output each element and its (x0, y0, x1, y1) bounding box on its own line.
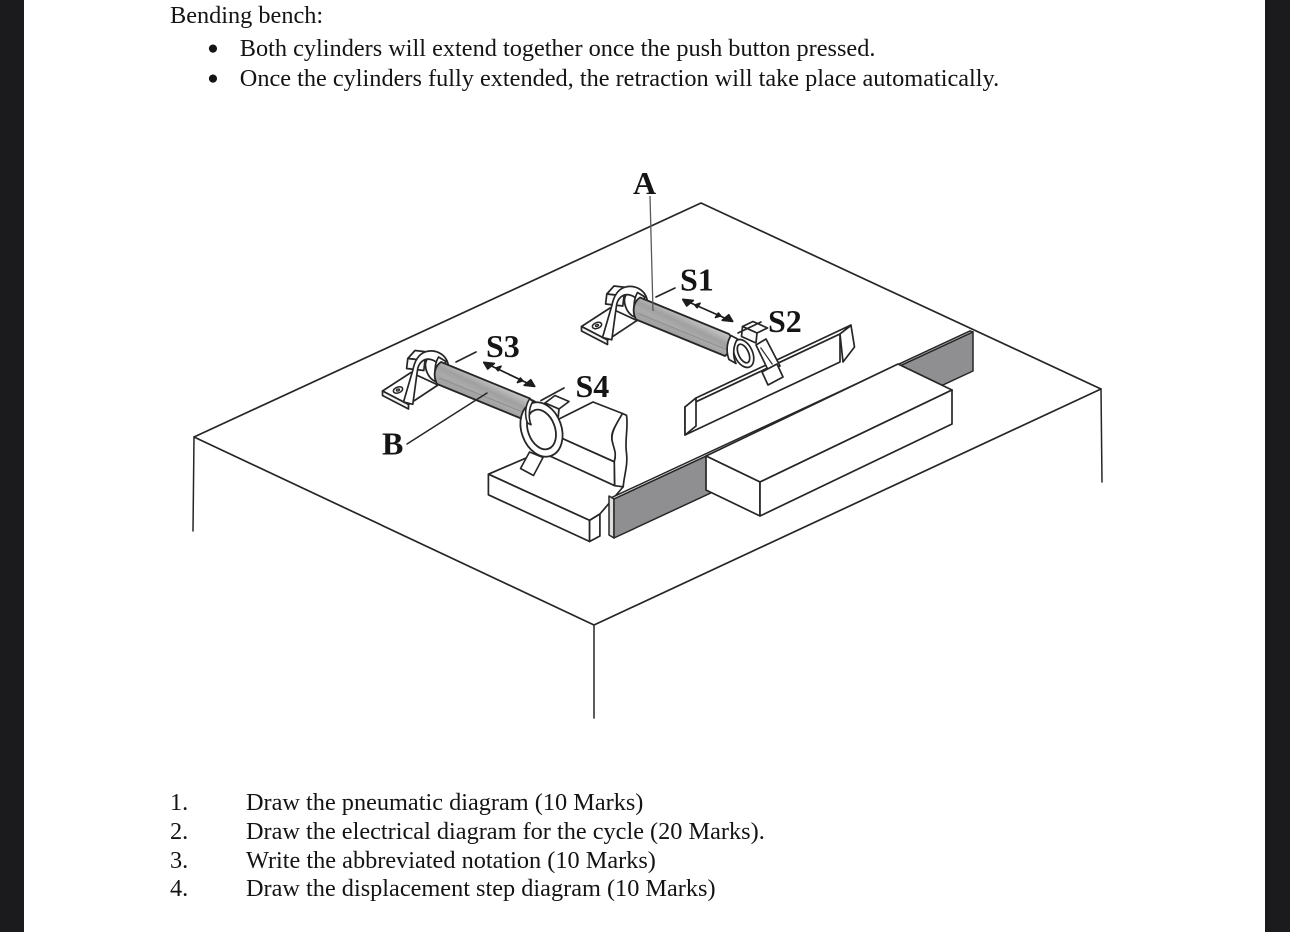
svg-text:S1: S1 (680, 262, 714, 298)
svg-text:B: B (382, 426, 403, 462)
svg-text:A: A (633, 165, 656, 201)
svg-text:S4: S4 (576, 368, 610, 404)
svg-text:S2: S2 (768, 303, 802, 339)
svg-text:S3: S3 (486, 328, 520, 364)
